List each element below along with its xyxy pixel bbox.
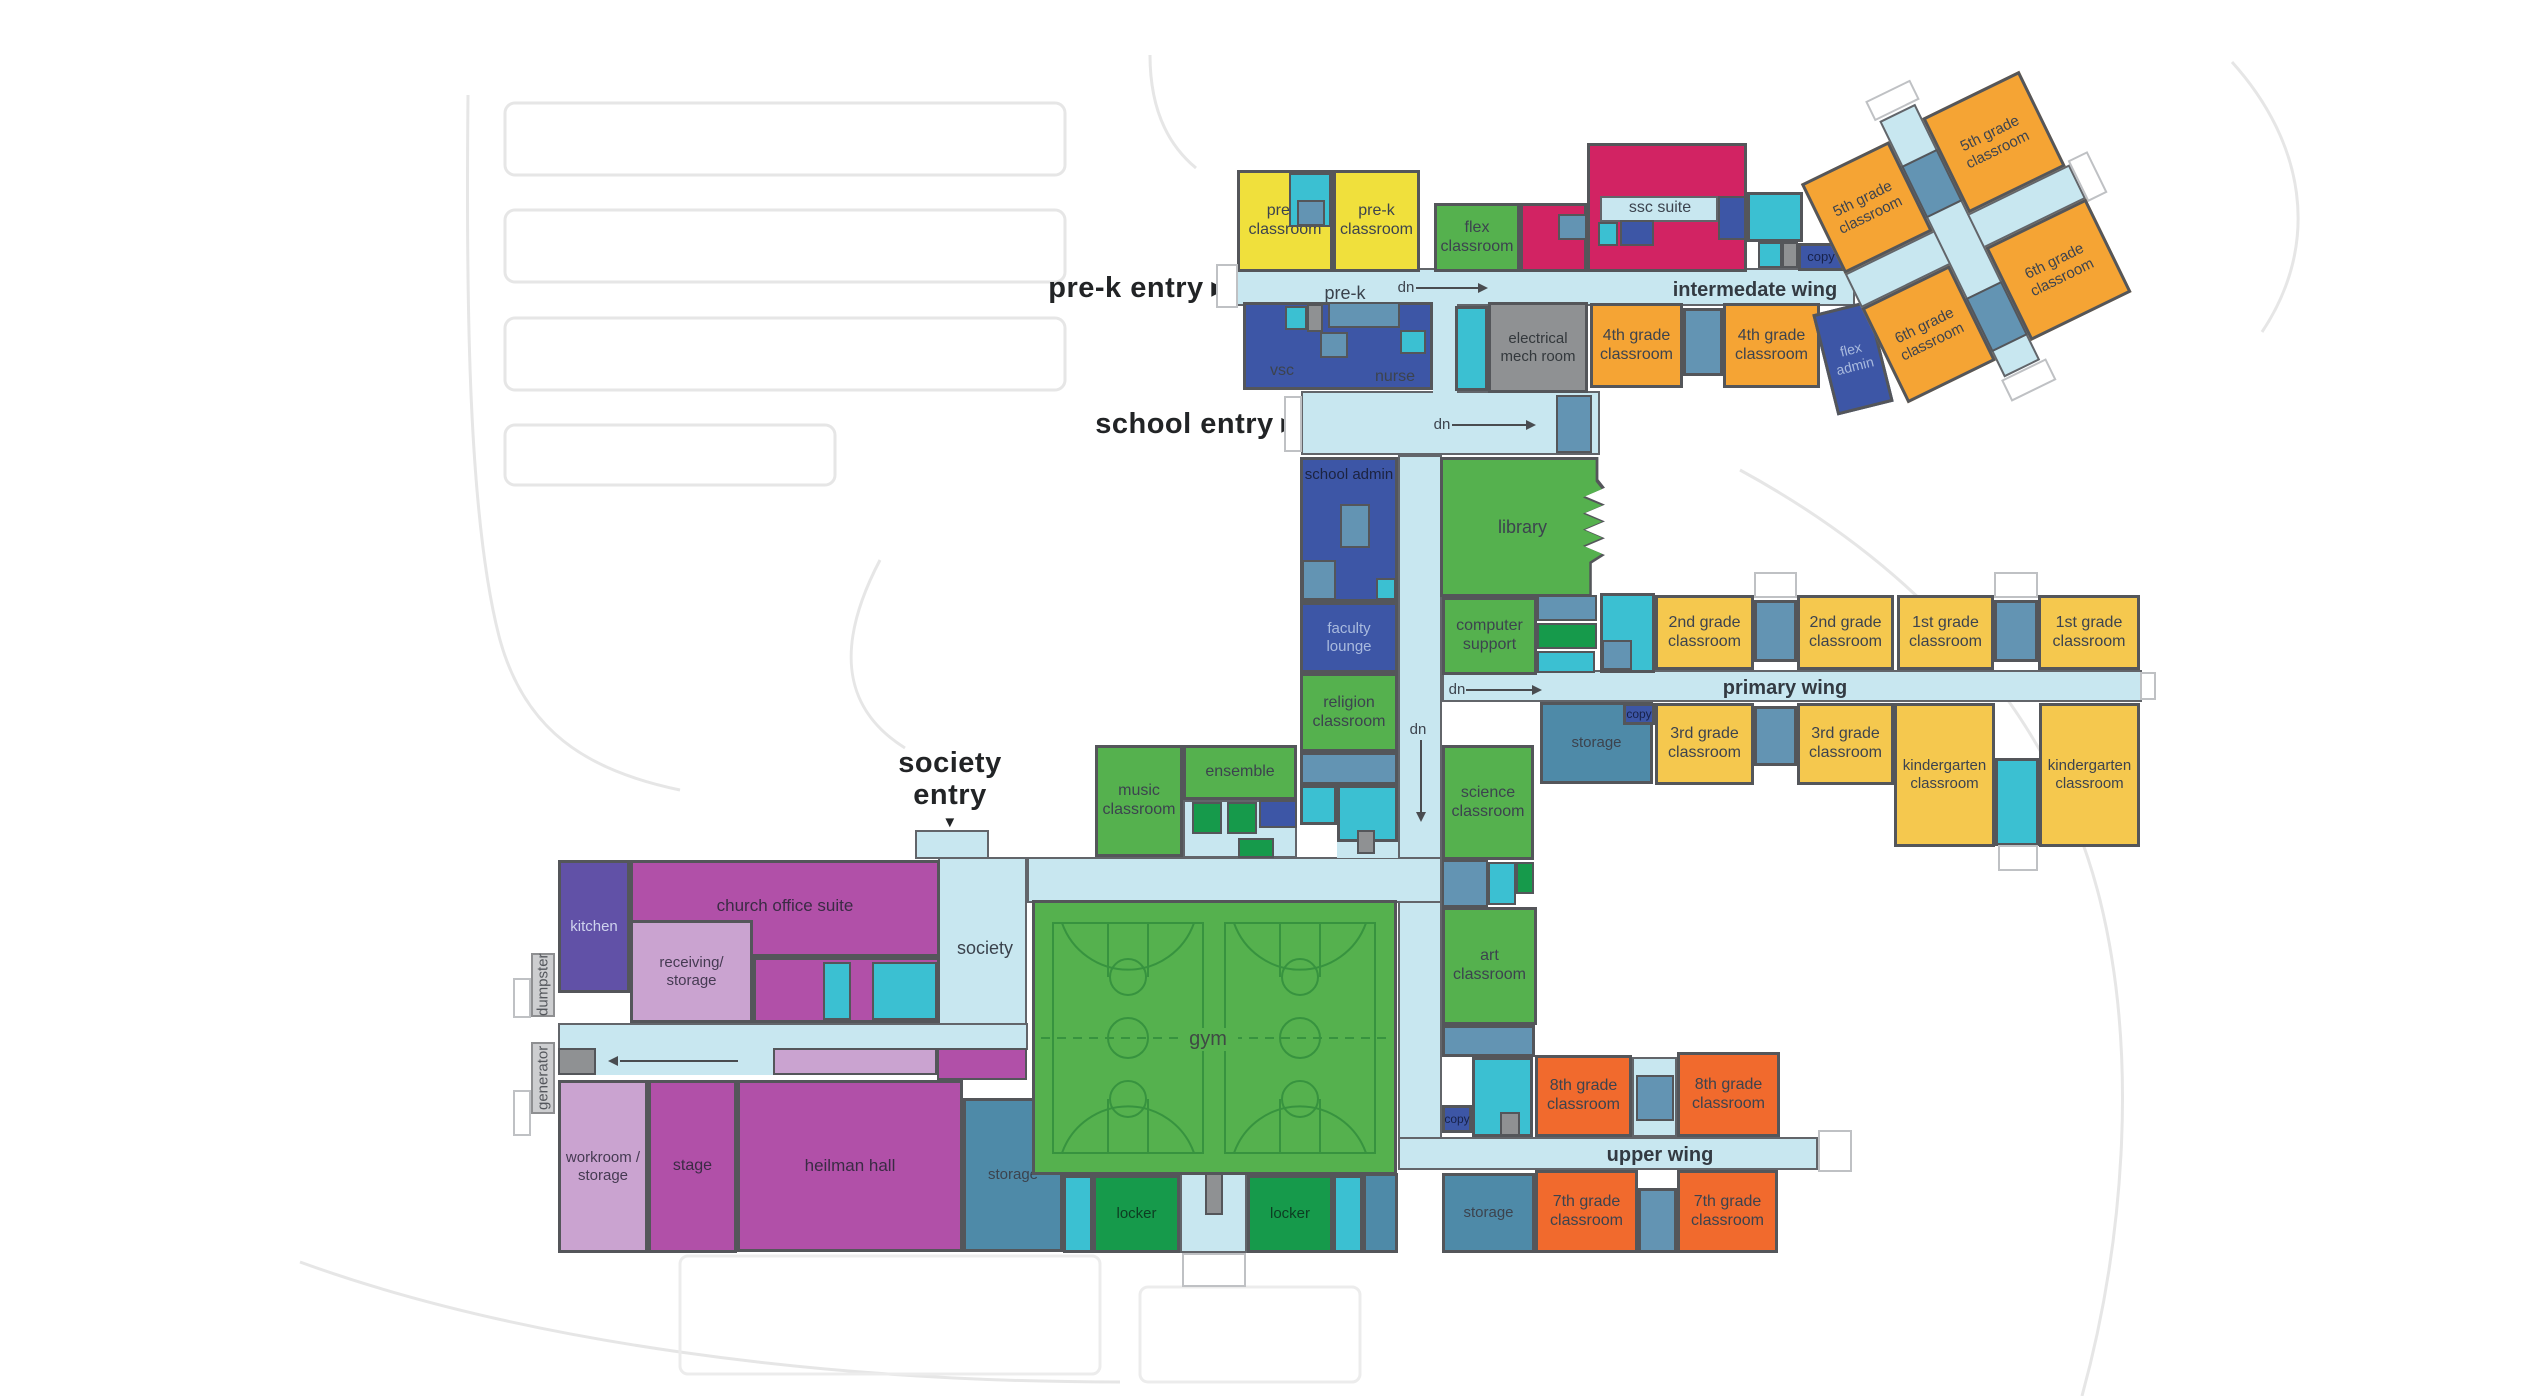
restroom-central (1300, 785, 1337, 825)
admin-restroom (1376, 578, 1396, 600)
room-8th-grade-2: 8th grade classroom (1677, 1052, 1780, 1137)
vestibule-primary-1 (1754, 600, 1797, 662)
vestibule-primary-2 (1994, 600, 2038, 662)
dn-arrow-head (1478, 283, 1488, 293)
chair-storage-strip (773, 1048, 937, 1075)
stair-suite-intermediate (1747, 192, 1803, 242)
vsc-office-2 (1320, 332, 1348, 358)
room-2nd-grade-1: 2nd grade classroom (1655, 595, 1754, 670)
upper-wing-label: upper wing (1600, 1144, 1720, 1167)
support-cell-2 (1537, 623, 1597, 649)
vestibule-primary-3 (1754, 706, 1797, 766)
room-kitchen: kitchen (558, 860, 630, 993)
gym-label: gym (1178, 1028, 1238, 1051)
vestibule-upper-stair (1636, 1075, 1674, 1121)
room-religion-classroom: religion classroom (1300, 673, 1398, 752)
service-cell (558, 1048, 596, 1075)
vsc-elevator (1307, 304, 1323, 332)
elevator (1782, 242, 1798, 268)
upper-elevator (1500, 1112, 1520, 1136)
room-4th-grade-1: 4th grade classroom (1590, 303, 1683, 388)
room-faculty-lounge: faculty lounge (1300, 602, 1398, 673)
room-computer-support: computer support (1442, 597, 1537, 675)
room-7th-grade-1: 7th grade classroom (1535, 1170, 1638, 1253)
room-3rd-grade-1: 3rd grade classroom (1655, 703, 1754, 785)
vestibule-4th (1683, 308, 1723, 376)
room-locker-1: locker (1093, 1175, 1180, 1253)
room-science-classroom: science classroom (1442, 745, 1534, 860)
service-arrow-head (608, 1056, 618, 1066)
primary-wing-label: primary wing (1705, 677, 1865, 700)
prek-stair (1297, 200, 1325, 226)
church-restroom-2 (872, 962, 937, 1020)
service-arrow-line (620, 1060, 738, 1062)
dumpster-badge: dumpster (531, 953, 555, 1017)
generator-pad (513, 1090, 531, 1136)
church-restroom-1 (823, 962, 851, 1020)
art-storage-band (1442, 1025, 1535, 1057)
school-entry-label: school entry▶ (1078, 408, 1296, 441)
school-entry-door (1284, 396, 1302, 452)
school-admin-label: school admin (1302, 466, 1396, 483)
dn-arrow-head-3 (1532, 685, 1542, 695)
primary-end-door (2140, 672, 2156, 700)
nurse-restroom (1400, 330, 1426, 354)
room-7th-grade-2: 7th grade classroom (1677, 1170, 1778, 1253)
practice-room-3 (1238, 838, 1274, 858)
practice-office (1259, 800, 1297, 828)
dumpster-pad (513, 978, 531, 1018)
room-1st-grade-2: 1st grade classroom (2038, 595, 2140, 670)
room-2nd-grade-2: 2nd grade classroom (1797, 595, 1894, 670)
ssc-suite-label: ssc suite (1605, 199, 1715, 217)
locker-restroom-east (1333, 1175, 1363, 1253)
vsc-office (1328, 302, 1400, 328)
corridor-prek-label: pre-k (1305, 283, 1385, 304)
room-8th-grade-1: 8th grade classroom (1535, 1055, 1632, 1137)
practice-room-1 (1192, 802, 1222, 834)
prek-entry-label: pre-k entry▶ (1030, 272, 1226, 305)
floor-plan: pre-k classroom pre-k classroom flex cla… (0, 0, 2544, 1396)
room-locker-2: locker (1247, 1175, 1333, 1253)
room-heilman-hall: heilman hall (737, 1080, 963, 1252)
ssc-office (1620, 220, 1654, 246)
practice-room-2 (1227, 802, 1257, 834)
stair-above-library (1556, 395, 1592, 453)
room-3rd-grade-2: 3rd grade classroom (1797, 703, 1894, 785)
room-art-classroom: art classroom (1442, 907, 1537, 1025)
locker-storage (1363, 1173, 1398, 1253)
room-receiving-storage: receiving/ storage (630, 920, 753, 1023)
upper-wing-end-door (1818, 1130, 1852, 1172)
room-flex-classroom: flex classroom (1434, 203, 1520, 272)
stair-cell (1758, 242, 1782, 268)
room-stage: stage (648, 1080, 737, 1253)
room-library: library (1440, 457, 1605, 597)
dn-arrow-line-3 (1466, 689, 1532, 691)
society-entry-label: society entry ▼ (880, 748, 1020, 831)
room-workroom-storage: workroom / storage (558, 1080, 648, 1253)
room-kindergarten-2: kindergarten classroom (2039, 703, 2140, 847)
dn-arrow-head-4 (1416, 812, 1426, 822)
room-1st-grade-1: 1st grade classroom (1897, 595, 1994, 670)
nurse-label: nurse (1362, 368, 1428, 386)
room-copy-upper: copy (1442, 1105, 1472, 1133)
generator-badge: generator (531, 1042, 555, 1114)
kindergarten-restrooms (1995, 758, 2039, 846)
ssc-office-2 (1718, 196, 1746, 240)
intermediate-wing-label: intermedate wing (1665, 279, 1845, 302)
room-ensemble: ensemble (1183, 745, 1297, 800)
admin-cell (1340, 504, 1370, 548)
science-restroom (1488, 862, 1516, 905)
room-music-classroom: music classroom (1095, 745, 1183, 857)
prek-entry-door (1216, 264, 1238, 308)
corridor-society-east (1027, 857, 1442, 903)
ssc-restroom (1598, 222, 1618, 246)
vestibule-upper-2 (1638, 1188, 1677, 1253)
room-4th-grade-2: 4th grade classroom (1723, 303, 1820, 388)
locker-restroom-west (1063, 1175, 1093, 1253)
vsc-restroom (1285, 306, 1307, 330)
society-corridor-label: society (950, 938, 1020, 959)
primary-stair-door-1 (1754, 572, 1797, 598)
room-workroom-steel (1300, 752, 1398, 785)
dn-label-4: dn (1405, 721, 1431, 738)
corridor-pocket (1433, 300, 1457, 393)
science-store (1516, 862, 1534, 894)
stair-cell-2 (1602, 640, 1632, 670)
room-kindergarten-1: kindergarten classroom (1894, 703, 1995, 847)
dn-arrow-line-2 (1452, 424, 1526, 426)
room-storage-upper: storage (1442, 1173, 1535, 1253)
dn-arrow-line (1416, 287, 1478, 289)
primary-stair-door-2 (1994, 572, 2038, 598)
ssc-cell (1558, 214, 1587, 240)
corridor-church (558, 1023, 1028, 1050)
locker-elevator (1205, 1173, 1223, 1215)
arrow-down-icon: ▼ (942, 815, 957, 831)
room-electrical-mech: electrical mech room (1488, 302, 1588, 393)
dn-arrow-head-2 (1526, 420, 1536, 430)
church-office-label: church office suite (640, 896, 930, 916)
church-corner (937, 1048, 1027, 1080)
elevator-central (1357, 830, 1375, 854)
kiln-room (1442, 860, 1488, 907)
dn-arrow-line-4 (1420, 740, 1422, 814)
society-entry-vestibule (915, 830, 989, 859)
kindergarten-door (1998, 845, 2038, 871)
room-pre-k-classroom-2: pre-k classroom (1333, 170, 1420, 272)
vsc-label: vsc (1252, 362, 1312, 380)
room-copy-primary: copy (1623, 703, 1655, 725)
admin-cell-2 (1302, 560, 1336, 600)
locker-south-door (1182, 1253, 1246, 1287)
support-cell-1 (1537, 595, 1597, 621)
support-cell-3 (1537, 651, 1595, 673)
stair-suite-mech (1455, 306, 1488, 391)
